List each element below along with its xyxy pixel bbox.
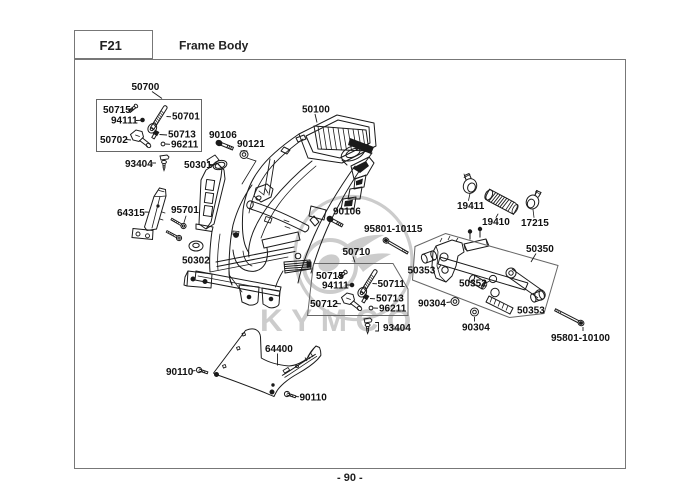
svg-text:64315: 64315	[117, 208, 145, 219]
svg-text:50711: 50711	[378, 279, 406, 290]
svg-text:50710: 50710	[343, 247, 371, 258]
svg-text:19411: 19411	[457, 201, 485, 212]
svg-text:50100: 50100	[302, 105, 330, 116]
svg-text:- 90 -: - 90 -	[337, 472, 363, 484]
svg-text:50712: 50712	[310, 299, 338, 310]
svg-text:50353: 50353	[408, 266, 436, 277]
svg-text:50352: 50352	[459, 279, 487, 290]
svg-text:90106: 90106	[209, 130, 237, 141]
svg-text:96211: 96211	[171, 140, 199, 151]
svg-text:50701: 50701	[172, 112, 200, 123]
svg-text:96211: 96211	[379, 304, 407, 315]
svg-text:94111: 94111	[322, 281, 349, 292]
svg-text:90304: 90304	[462, 323, 490, 334]
svg-text:50702: 50702	[100, 135, 128, 146]
svg-text:90121: 90121	[237, 139, 265, 150]
svg-text:50301: 50301	[184, 160, 212, 171]
svg-text:90110: 90110	[300, 393, 328, 404]
svg-text:64400: 64400	[265, 344, 293, 355]
svg-text:Frame Body: Frame Body	[179, 39, 249, 53]
svg-text:17215: 17215	[521, 218, 549, 229]
svg-text:F21: F21	[100, 38, 122, 53]
svg-text:50700: 50700	[132, 82, 160, 93]
svg-text:90110: 90110	[166, 367, 194, 378]
svg-text:95801-10115: 95801-10115	[364, 224, 423, 235]
svg-text:19410: 19410	[482, 217, 510, 228]
svg-text:95801-10100: 95801-10100	[551, 333, 610, 344]
svg-text:90304: 90304	[418, 299, 446, 310]
svg-text:50715: 50715	[103, 105, 131, 116]
svg-text:94111: 94111	[111, 116, 138, 127]
svg-text:50302: 50302	[182, 256, 210, 267]
svg-text:50350: 50350	[526, 244, 554, 255]
svg-text:93404: 93404	[125, 159, 153, 170]
svg-text:93404: 93404	[383, 323, 411, 334]
svg-text:50353: 50353	[517, 306, 545, 317]
svg-text:90106: 90106	[333, 207, 361, 218]
svg-text:95701: 95701	[171, 205, 199, 216]
